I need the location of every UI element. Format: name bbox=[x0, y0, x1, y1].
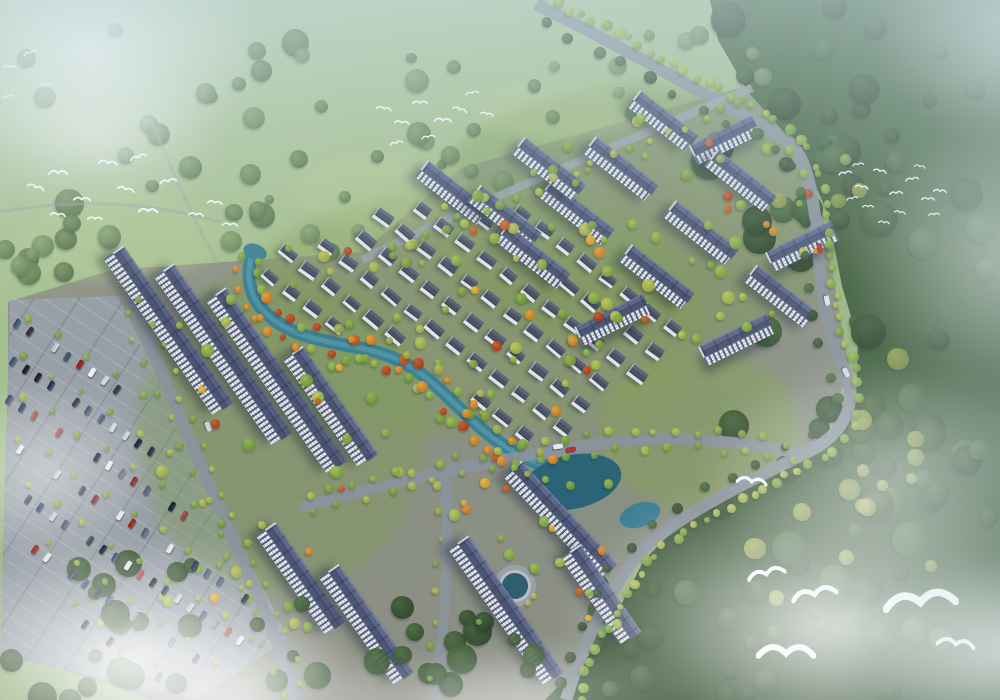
aerial-rendering-scene bbox=[0, 0, 1000, 700]
east-haze bbox=[0, 0, 1000, 700]
mist-and-haze-layer bbox=[0, 0, 1000, 700]
